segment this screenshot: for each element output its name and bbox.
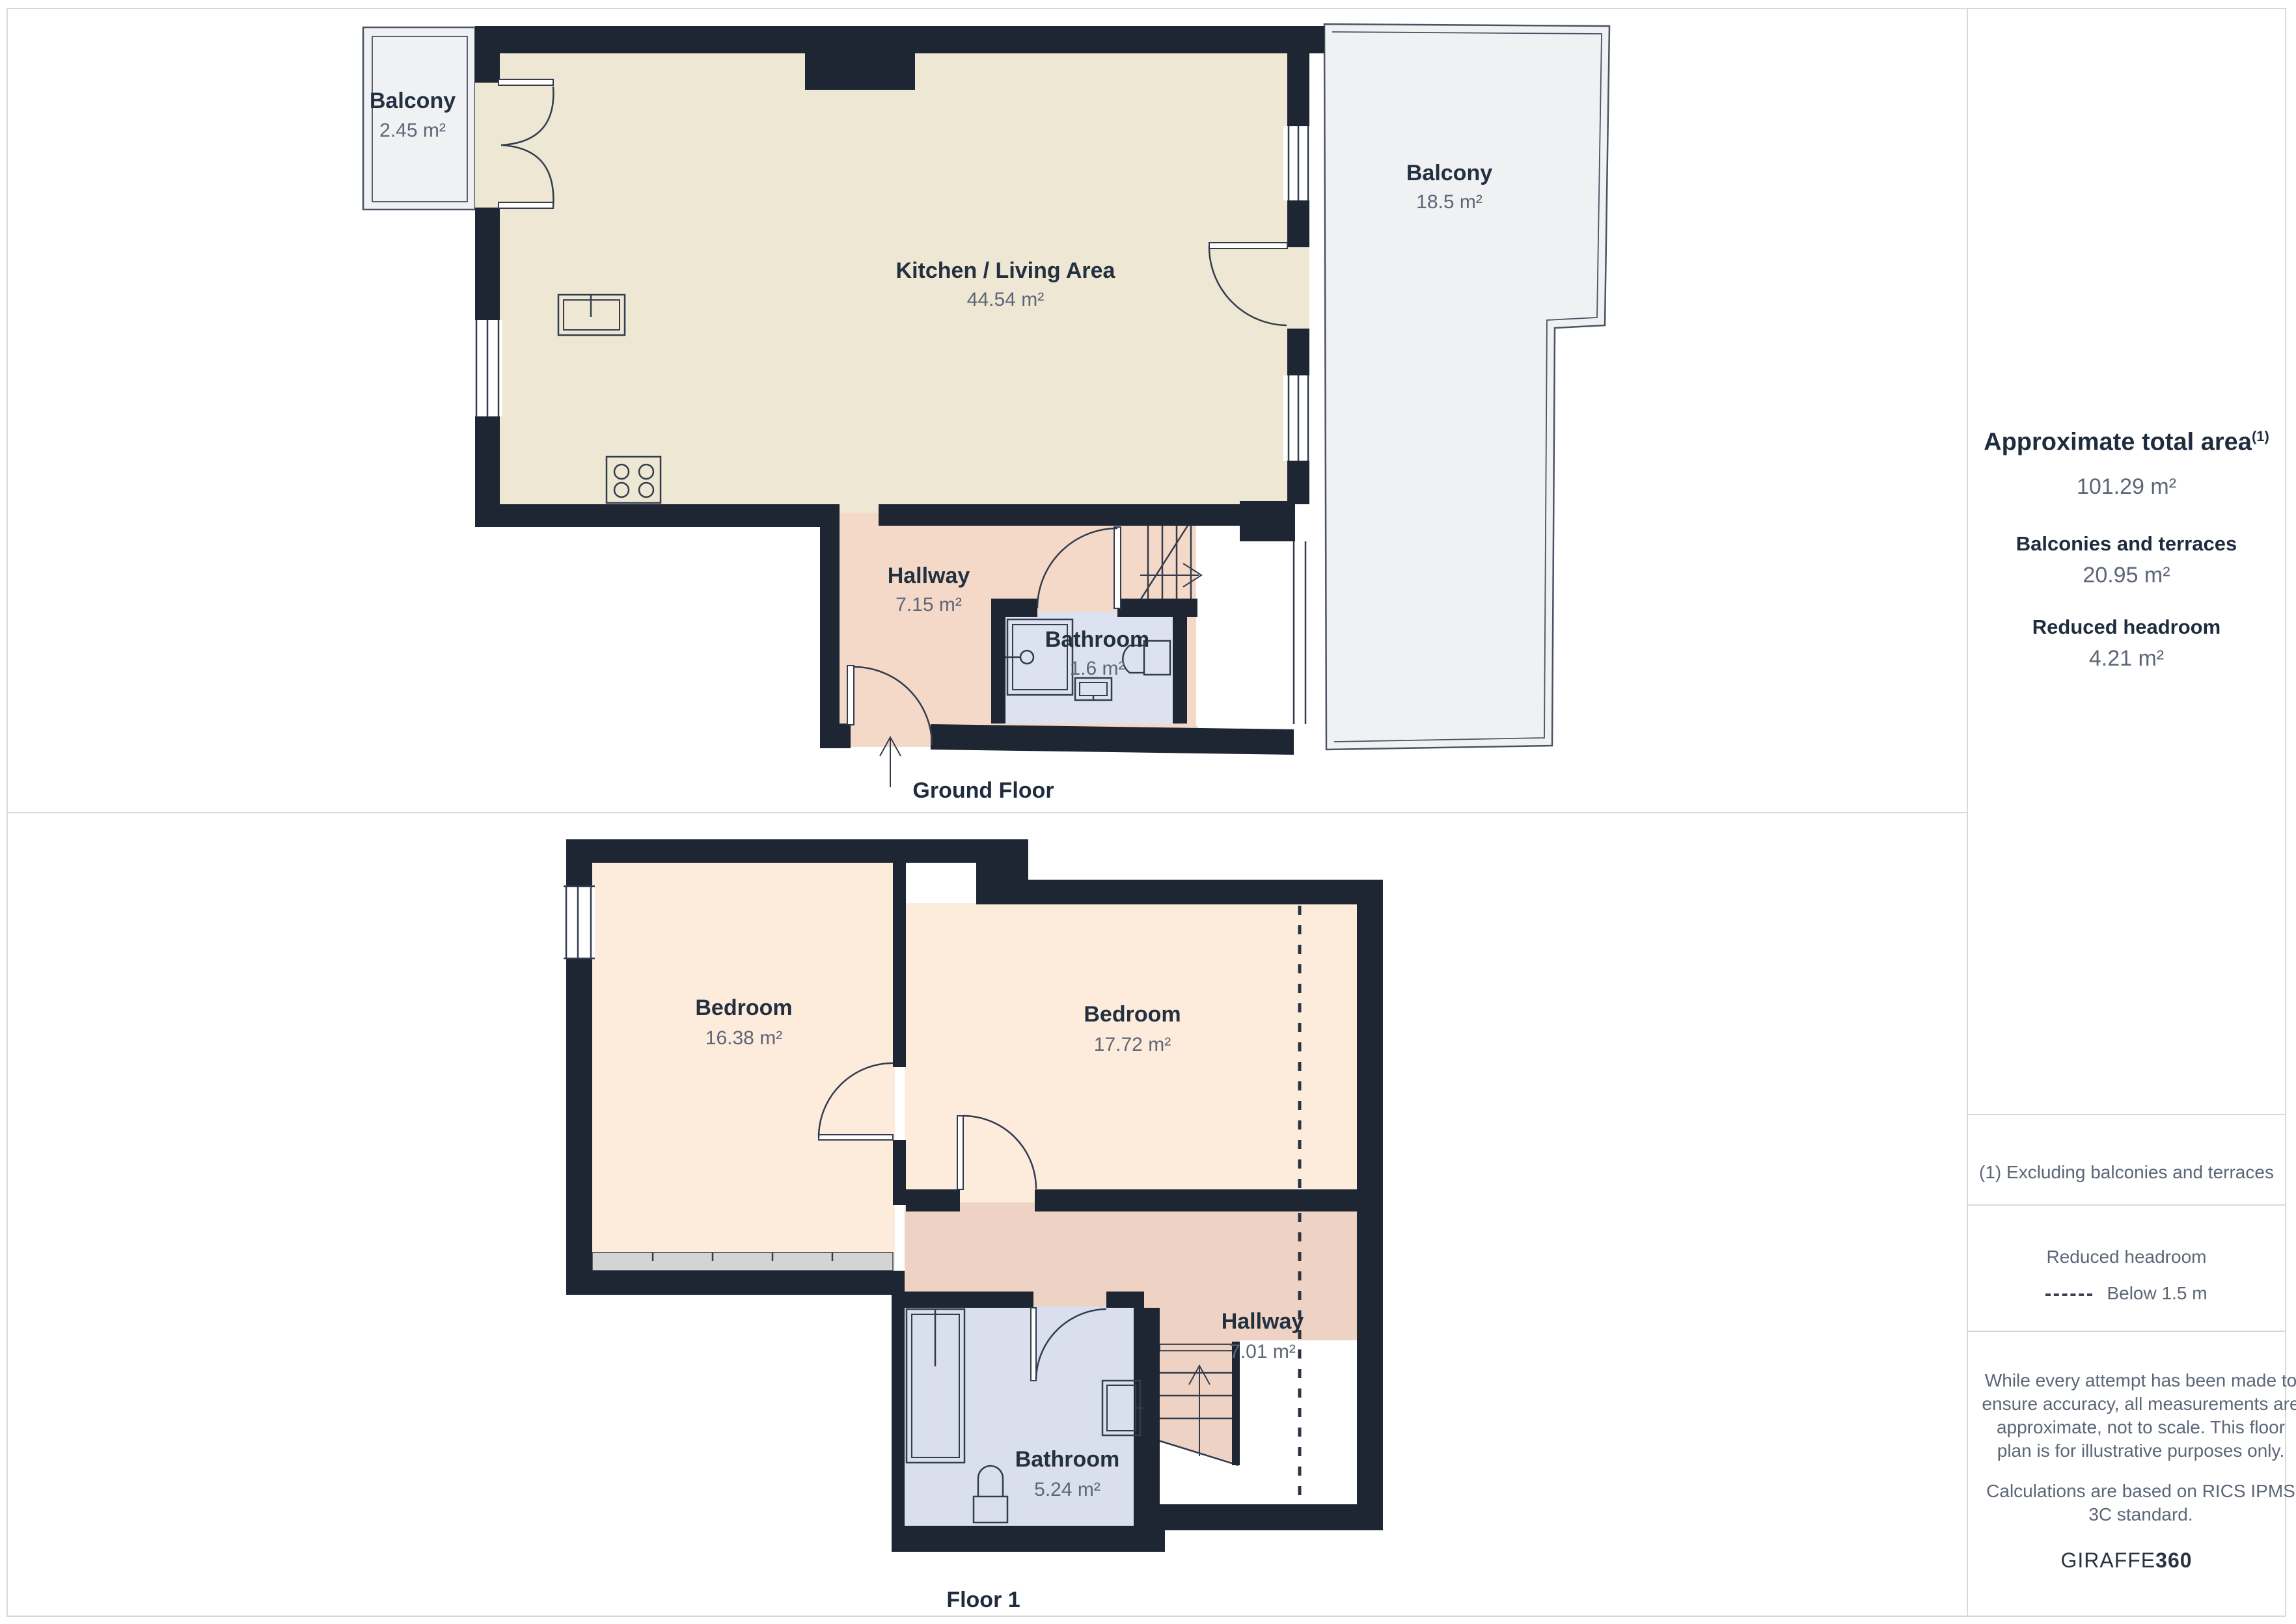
room-area: 5.24 m²	[1034, 1479, 1100, 1500]
room-area: 18.5 m²	[1416, 191, 1483, 213]
wardrobe-strip	[592, 1252, 893, 1271]
balconies-value: 20.95 m²	[1967, 563, 2286, 588]
floor-label-floor1: Floor 1	[0, 1588, 1967, 1613]
window-stairwell-right	[1287, 541, 1309, 724]
room-area: 7.15 m²	[895, 594, 962, 616]
total-area-title: Approximate total area(1)	[1967, 428, 2286, 457]
void-under-stairs-gf	[1196, 521, 1295, 725]
kitchen-living-floor	[482, 39, 1295, 513]
room-label: Bedroom	[1084, 1002, 1181, 1027]
room-label: Hallway	[1222, 1309, 1304, 1334]
legend-row: Below 1.5 m	[1967, 1282, 2286, 1305]
legend-title: Reduced headroom	[1967, 1245, 2286, 1269]
floor-label-ground: Ground Floor	[0, 778, 1967, 804]
disclaimer-text-2: Calculations are based on RICS IPMS 3C s…	[1967, 1480, 2296, 1526]
room-label: Bedroom	[695, 995, 792, 1020]
window-right-wall-lower	[1283, 375, 1313, 461]
room-area: 44.54 m²	[967, 289, 1044, 310]
room-label: Bathroom	[1015, 1447, 1120, 1472]
bathroom-f1-floor	[903, 1306, 1144, 1528]
room-label: Bathroom	[1045, 627, 1150, 652]
room-area: 16.38 m²	[705, 1027, 782, 1049]
balconies-label: Balconies and terraces	[1967, 532, 2286, 556]
room-label: Kitchen / Living Area	[896, 258, 1116, 283]
balcony-right	[1324, 24, 1609, 750]
sidebar-divider-3	[1967, 1331, 2286, 1332]
reduced-headroom-value: 4.21 m²	[1967, 646, 2286, 671]
page-border-bottom	[7, 1616, 2286, 1617]
total-area-value: 101.29 m²	[1967, 474, 2286, 500]
window-left-wall	[472, 320, 502, 416]
room-area: 7.01 m²	[1229, 1341, 1296, 1362]
bedroom-right-floor	[905, 903, 1357, 1211]
disclaimer-text-1: While every attempt has been made to ens…	[1967, 1369, 2296, 1463]
room-area: 2.45 m²	[379, 120, 446, 141]
page-border-top	[7, 8, 2286, 9]
footnote-text: (1) Excluding balconies and terraces	[1967, 1161, 2286, 1184]
balcony-left	[363, 27, 475, 210]
sidebar-divider-2	[1967, 1204, 2286, 1206]
window-bedroom-left	[564, 886, 595, 958]
room-label: Balcony	[370, 88, 456, 113]
room-label: Hallway	[888, 563, 970, 588]
sidebar-divider-1	[1967, 1114, 2286, 1115]
room-area: 1.6 m²	[1069, 658, 1125, 679]
room-label: Balcony	[1406, 161, 1492, 185]
giraffe360-logo-bold: 360	[2155, 1549, 2192, 1572]
room-area: 17.72 m²	[1094, 1034, 1171, 1055]
floor-panel-divider	[7, 812, 1967, 813]
giraffe360-logo: GIRAFFE360	[1967, 1549, 2286, 1573]
floor1-plan: Bedroom 16.38 m² Bedroom 17.72 m² Hallwa…	[553, 826, 1393, 1562]
void-f1	[1240, 1340, 1357, 1504]
legend-item-label: Below 1.5 m	[2107, 1283, 2207, 1303]
ground-floor-plan: Balcony 2.45 m² Kitchen / Living Area 44…	[345, 13, 1640, 787]
bedroom-left-floor	[589, 859, 895, 1275]
footnote-mark: (1)	[2252, 428, 2269, 444]
reduced-headroom-label: Reduced headroom	[1967, 616, 2286, 639]
window-right-wall-upper	[1283, 126, 1313, 200]
dashed-line-swatch	[2045, 1293, 2092, 1296]
info-sidebar: Approximate total area(1) 101.29 m² Balc…	[1967, 8, 2286, 1617]
